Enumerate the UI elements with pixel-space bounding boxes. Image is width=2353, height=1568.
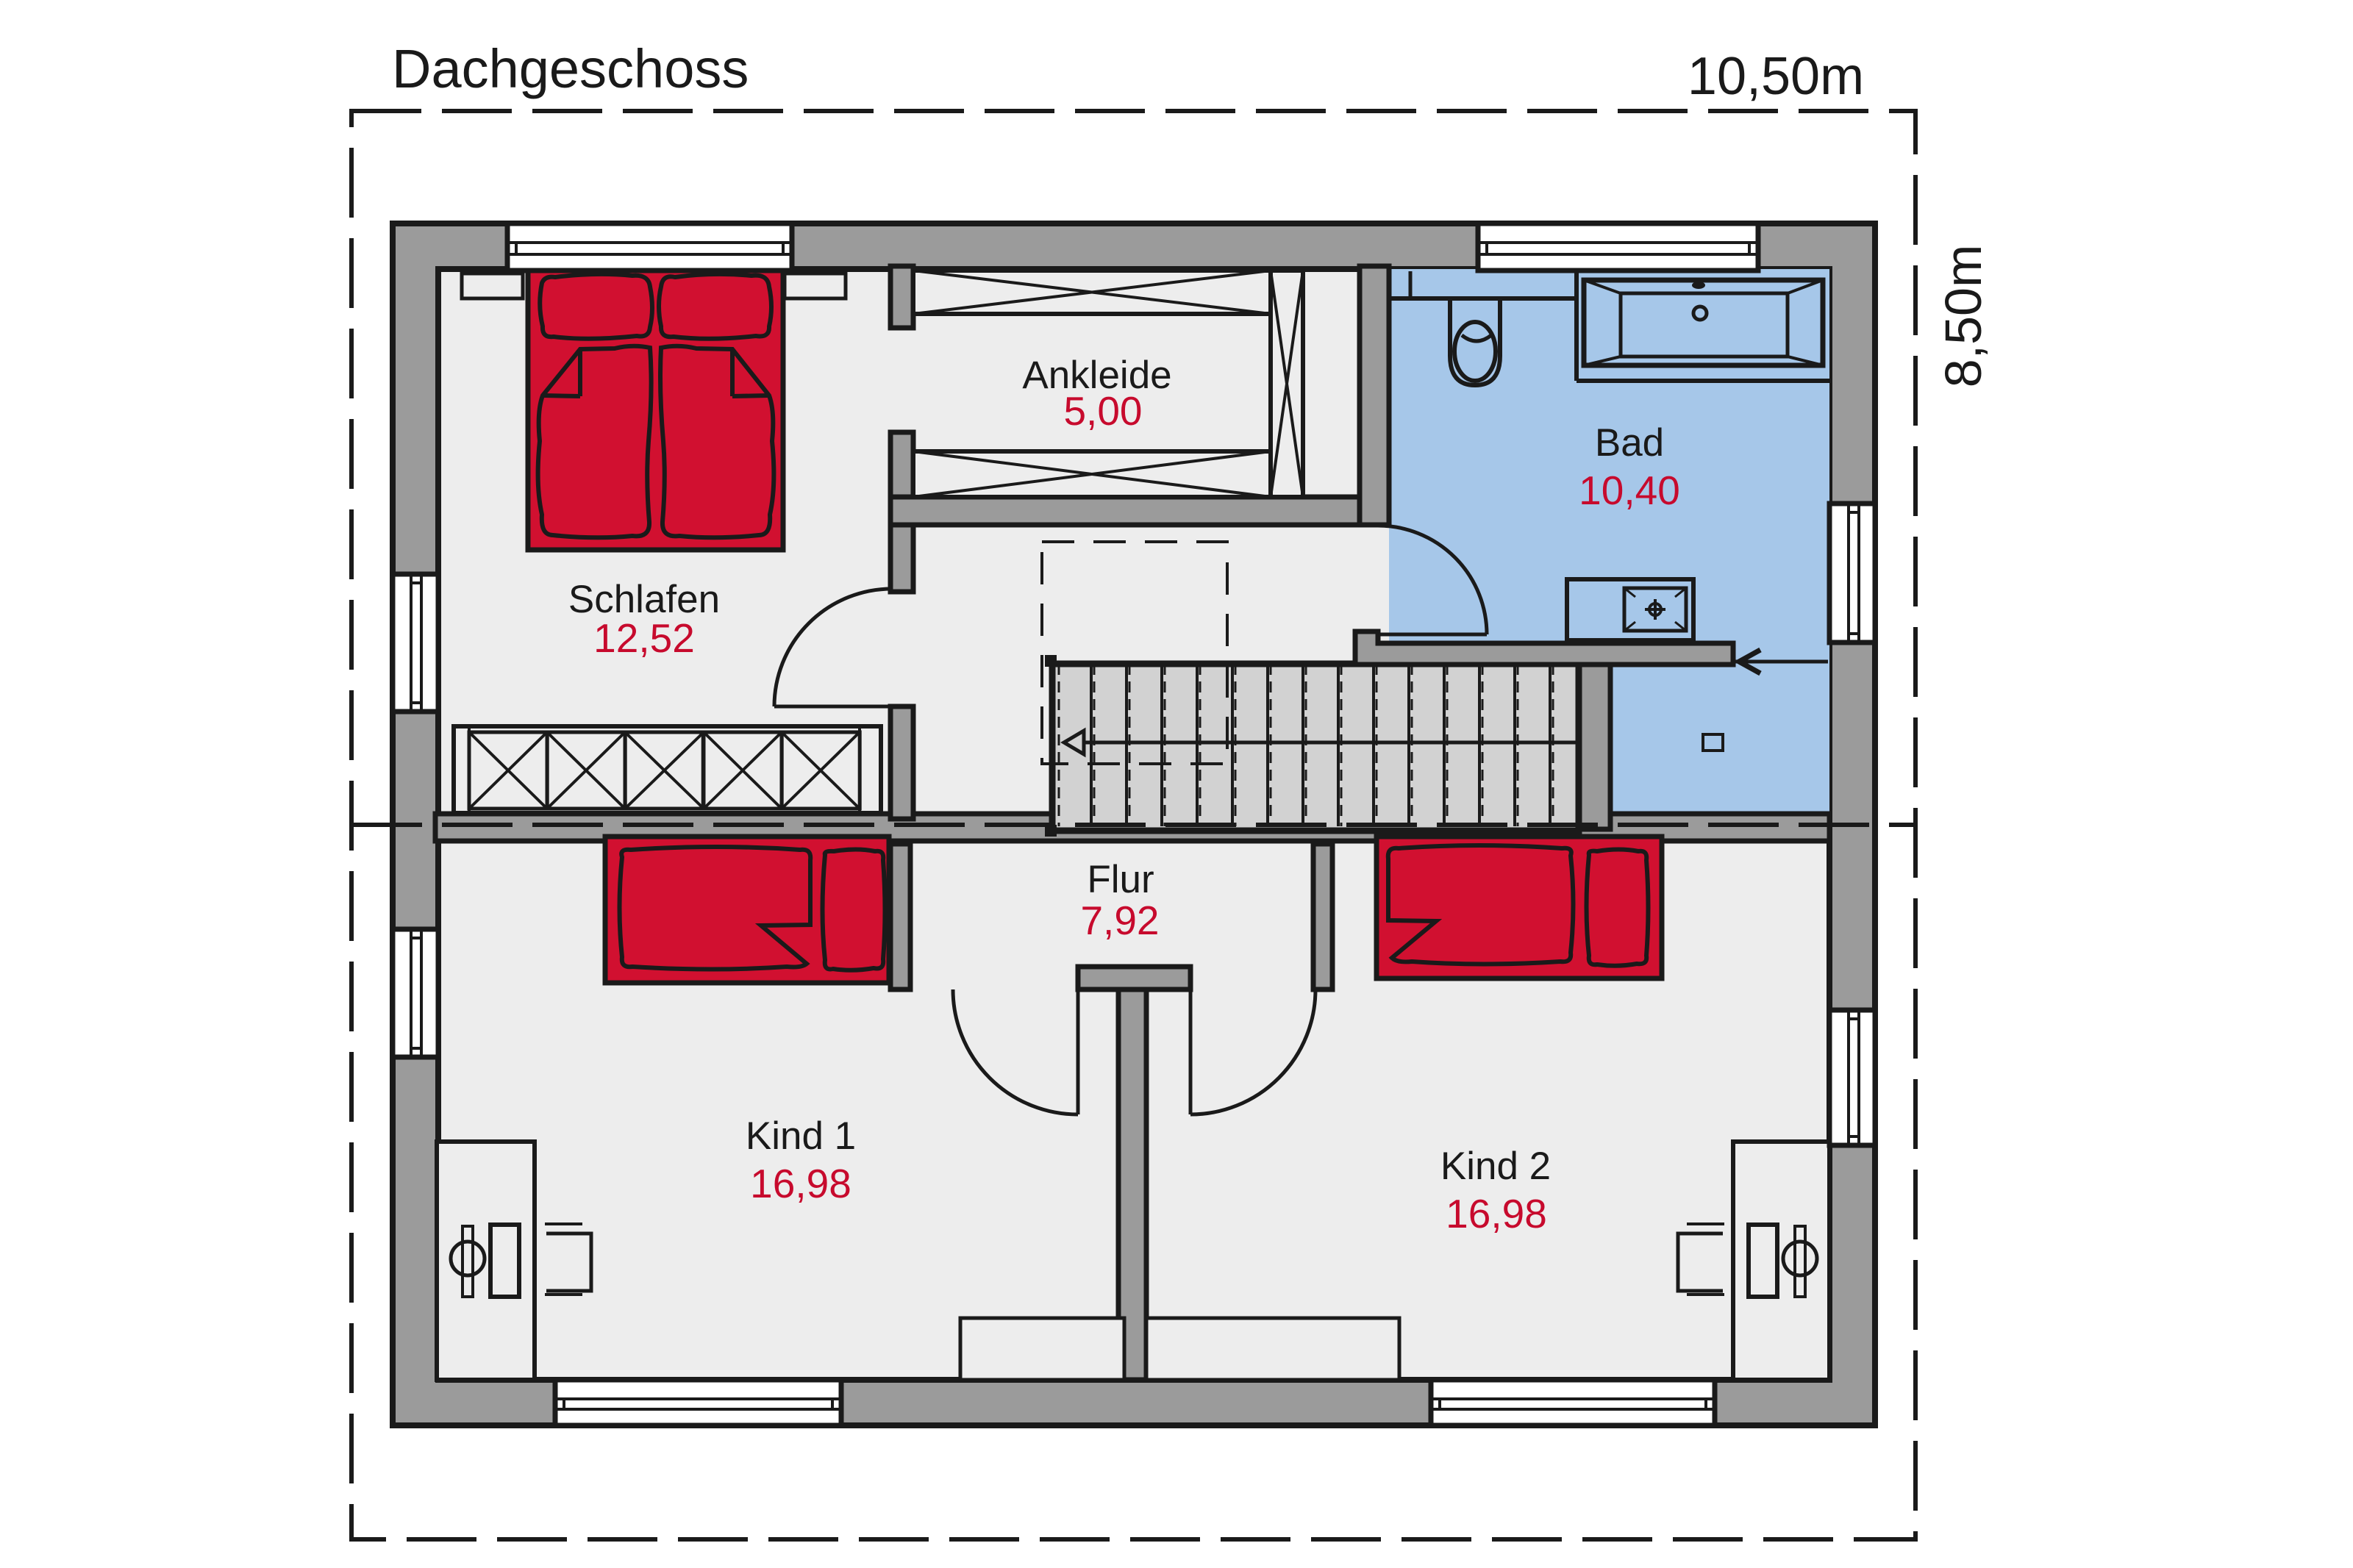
svg-text:Kind 1: Kind 1 xyxy=(746,1114,856,1158)
svg-text:16,98: 16,98 xyxy=(750,1161,851,1206)
svg-text:Dachgeschoss: Dachgeschoss xyxy=(392,38,749,99)
svg-text:Kind 2: Kind 2 xyxy=(1440,1145,1551,1188)
svg-text:5,00: 5,00 xyxy=(1063,388,1142,434)
svg-text:16,98: 16,98 xyxy=(1446,1191,1547,1236)
svg-text:12,52: 12,52 xyxy=(593,615,695,661)
svg-text:7,92: 7,92 xyxy=(1080,898,1159,943)
svg-text:Bad: Bad xyxy=(1595,421,1664,465)
svg-text:10,50m: 10,50m xyxy=(1688,47,1864,106)
svg-text:10,40: 10,40 xyxy=(1579,468,1680,513)
svg-text:8,50m: 8,50m xyxy=(1935,245,1992,388)
svg-text:Flur: Flur xyxy=(1087,858,1154,901)
